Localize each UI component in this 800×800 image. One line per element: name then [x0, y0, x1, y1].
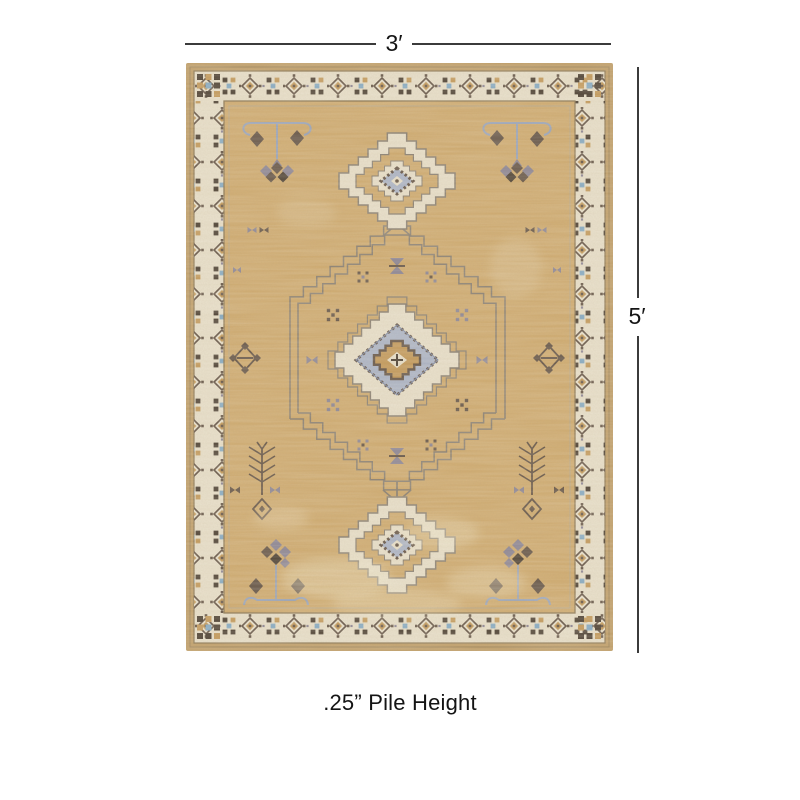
- rug-texture-grain: [186, 63, 613, 651]
- height-dimension-line-bottom: [637, 336, 639, 653]
- height-dimension-label: 5′: [618, 305, 656, 328]
- product-dimension-view: 3′ 5′ .25” Pile Height: [0, 0, 800, 800]
- width-dimension-line-left: [185, 43, 376, 45]
- width-dimension-line-right: [412, 43, 611, 45]
- width-dimension-label: 3′: [374, 32, 414, 55]
- pile-height-label: .25” Pile Height: [0, 690, 800, 716]
- height-dimension-line-top: [637, 67, 639, 298]
- rug-product-image: [186, 63, 613, 651]
